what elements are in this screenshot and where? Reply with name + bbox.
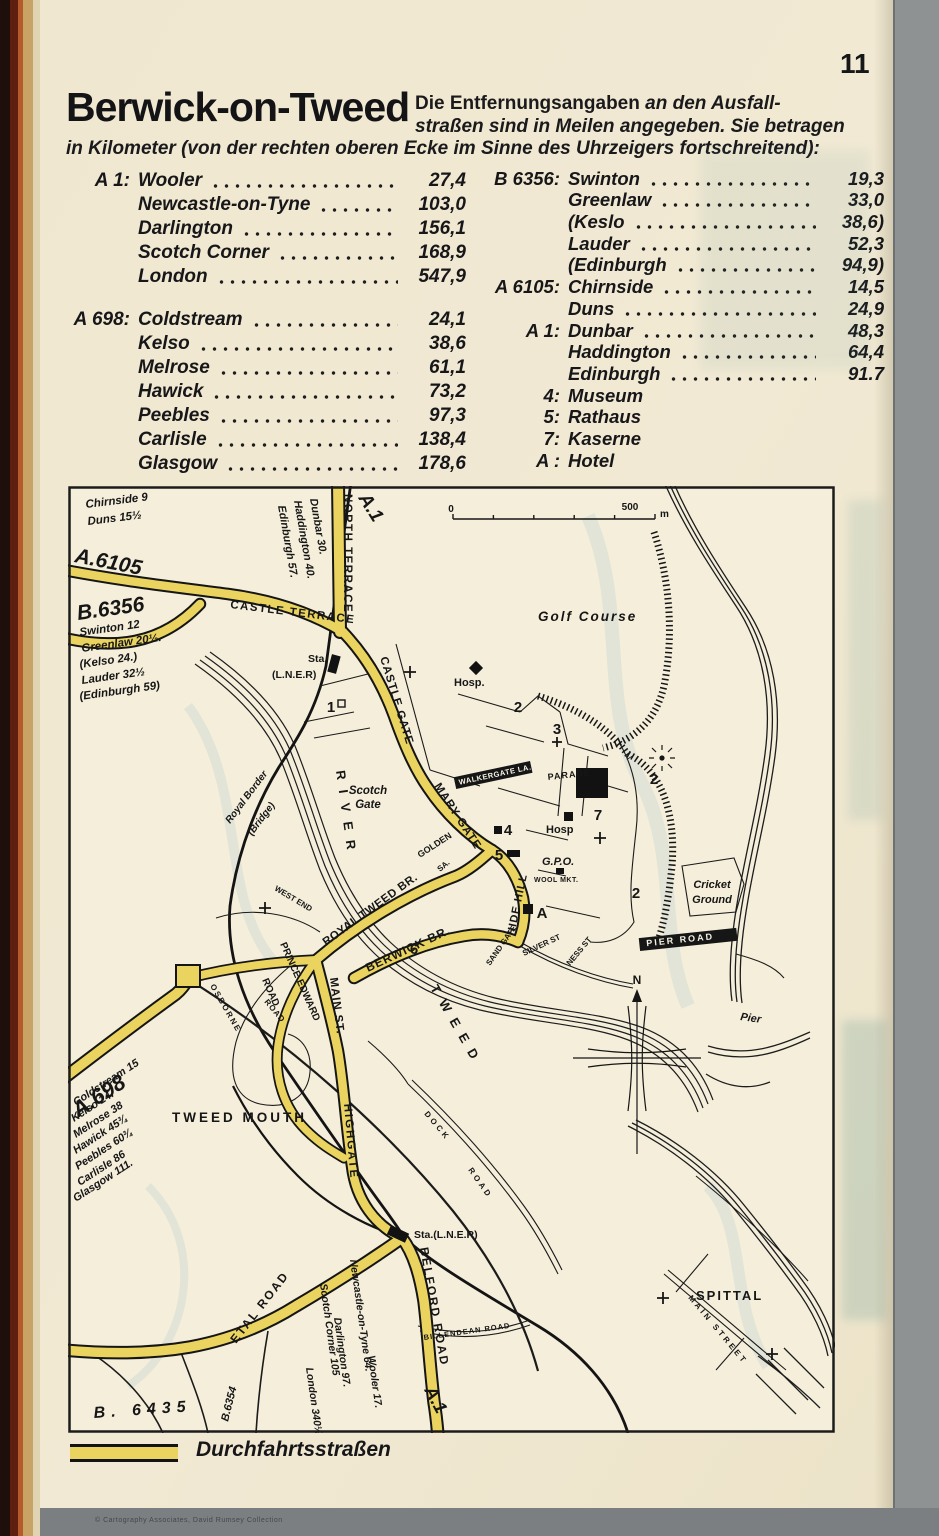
distance-group-a698: A 698:Coldstream24,1 Kelso38,6 Melrose61… [66,307,466,475]
hospital-town-marker [564,812,573,821]
dot-leader [251,316,398,328]
table-row: A 1:Wooler27,4 [66,168,466,192]
dot-leader [210,177,398,189]
place-name: Newcastle-on-Tyne [138,194,310,216]
key-symbol: 5: [484,406,568,428]
scale-unit: m [660,509,669,520]
golf-course-label: Golf Course [538,609,637,624]
legend-label: Durchfahrtsstraßen [196,1438,391,1462]
road-label: A 698: [66,309,138,331]
table-row: Kelso38,6 [66,331,466,355]
key-symbol: 7: [484,428,568,450]
key-label: Rathaus [568,406,641,428]
dot-leader [215,436,398,448]
place-name: Chirnside [568,276,653,298]
marker-2: 2 [632,885,640,902]
marker-1: 1 [327,699,335,716]
bleedthrough-ghost [700,150,870,370]
distance-value: 547,9 [404,266,466,288]
distance-value: 103,0 [404,194,466,216]
copyright-text: © Cartography Associates, David Rumsey C… [95,1517,283,1524]
dot-leader [218,412,398,424]
dot-leader [225,460,398,472]
a698-junction-box [176,965,200,987]
place-name: Glasgow [138,453,217,475]
key-label: Museum [568,385,643,407]
road-label: B 6356: [484,168,568,190]
distance-value: 168,9 [404,242,466,264]
compass-north-label: N [633,973,642,987]
place-name: Wooler [138,170,202,192]
place-name: Carlisle [138,429,207,451]
table-row: Carlisle138,4 [66,427,466,451]
table-row: Darlington156,1 [66,216,466,240]
distance-value: 38,6 [404,333,466,355]
place-name: (Keslo [568,211,625,233]
place-name: Hawick [138,381,203,403]
place-name: Kelso [138,333,190,355]
scanned-atlas-page: 11 Berwick-on-Tweed Die Entfernungsangab… [0,0,939,1536]
distance-value: 73,2 [404,381,466,403]
road-label: A 1: [484,320,568,342]
marker-2: 2 [514,699,522,716]
legend-road-swatch [70,1444,178,1462]
place-name: Scotch Corner [138,242,269,264]
lighthouse-sunburst [649,745,675,771]
page-title: Berwick-on-Tweed [66,84,409,131]
dot-leader [318,201,398,213]
rathaus-marker [507,850,520,857]
table-row: Scotch Corner168,9 [66,240,466,264]
table-row: London547,9 [66,264,466,288]
station-bottom-label: Sta.(L.N.E.R) [414,1229,478,1241]
road-label: A 1: [66,170,138,192]
place-name: Coldstream [138,309,243,331]
table-row: Glasgow178,6 [66,451,466,475]
key-row: 5:Rathaus [484,407,884,429]
table-row: A 698:Coldstream24,1 [66,307,466,331]
table-row: Peebles97,3 [66,403,466,427]
key-row: A :Hotel [484,450,884,472]
distance-value: 156,1 [404,218,466,240]
scotch-gate-label-2: Gate [355,799,381,811]
bleedthrough-ghost [842,1020,886,1320]
scotch-gate-label-1: Scotch [349,785,387,797]
distance-value: 61,1 [404,357,466,379]
distance-group-a1: A 1:Wooler27,4 Newcastle-on-Tyne103,0 Da… [66,168,466,288]
museum-marker [494,826,502,834]
dot-leader [218,364,398,376]
scan-left-edge [0,0,40,1536]
spittal-label: SPITTAL [696,1288,763,1303]
dot-leader [668,370,816,382]
hospital-north-label: Hosp. [454,677,485,689]
scan-right-edge [893,0,939,1536]
distance-value: 178,6 [404,453,466,475]
dot-leader [241,225,398,237]
marker-4: 4 [504,822,513,839]
scale-500: 500 [622,502,639,513]
place-name: Duns [568,298,614,320]
key-symbol: A : [484,450,568,472]
dot-leader [277,249,398,261]
cricket-ground-label-2: Ground [692,894,732,906]
key-symbol: 4: [484,385,568,407]
key-row: 7:Kaserne [484,428,884,450]
place-name: (Edinburgh [568,254,667,276]
distance-value: 138,4 [404,429,466,451]
dot-leader [216,273,398,285]
distance-value: 27,4 [404,170,466,192]
city-map: 0 500 m N [68,486,835,1433]
key-label: Kaserne [568,428,641,450]
intro-paragraph: Die Entfernungsangaben an den Ausfall- s… [415,92,890,138]
map-key-list: 4:Museum 5:Rathaus 7:Kaserne A :Hotel [484,385,884,472]
dot-leader [198,340,398,352]
intro-bold: Die Entfernungsangaben [415,93,640,114]
hotel-marker [523,904,533,914]
scale-zero: 0 [448,504,454,515]
tweedmouth-label: TWEED MOUTH [172,1110,307,1125]
table-row: Melrose61,1 [66,355,466,379]
page-number: 11 [840,48,870,80]
table-row: Newcastle-on-Tyne103,0 [66,192,466,216]
intro-line2: straßen sind in Meilen angegeben. Sie be… [415,116,845,137]
marker-2: 2 [650,771,658,788]
road-label: A 6105: [484,276,568,298]
north-terrace-label: NORTH TERRACE [341,494,353,613]
marker-5: 5 [495,847,503,864]
marker-7: 7 [594,807,602,824]
place-name: Darlington [138,218,233,240]
place-name: Melrose [138,357,210,379]
key-row: 4:Museum [484,385,884,407]
dot-leader [211,388,398,400]
place-name: Edinburgh [568,363,660,385]
wool-market-label: WOOL MKT. [534,877,578,884]
marker-hotel-a: A [537,905,548,922]
distance-value: 24,1 [404,309,466,331]
distance-value: 97,3 [404,405,466,427]
key-label: Hotel [568,450,614,472]
gpo-label: G.P.O. [542,856,574,868]
bleedthrough-ghost [848,500,882,820]
table-row: Hawick73,2 [66,379,466,403]
place-name: Dunbar [568,320,633,342]
place-name: Haddington [568,341,671,363]
place-name: Swinton [568,168,640,190]
gpo-marker [556,868,564,874]
place-name: London [138,266,208,288]
cricket-ground-label-1: Cricket [693,879,732,891]
place-name: Peebles [138,405,210,427]
intro-line1: an den Ausfall- [645,93,780,114]
marker-6: 6 [410,941,418,958]
hospital-town-label: Hosp [546,824,574,836]
station-top-label-2: (L.N.E.R) [272,669,316,681]
place-name: Lauder [568,233,630,255]
marker-3: 3 [553,721,561,738]
station-top-label-1: Sta. [308,653,327,665]
place-name: Greenlaw [568,189,651,211]
distance-table-left: A 1:Wooler27,4 Newcastle-on-Tyne103,0 Da… [66,168,466,475]
